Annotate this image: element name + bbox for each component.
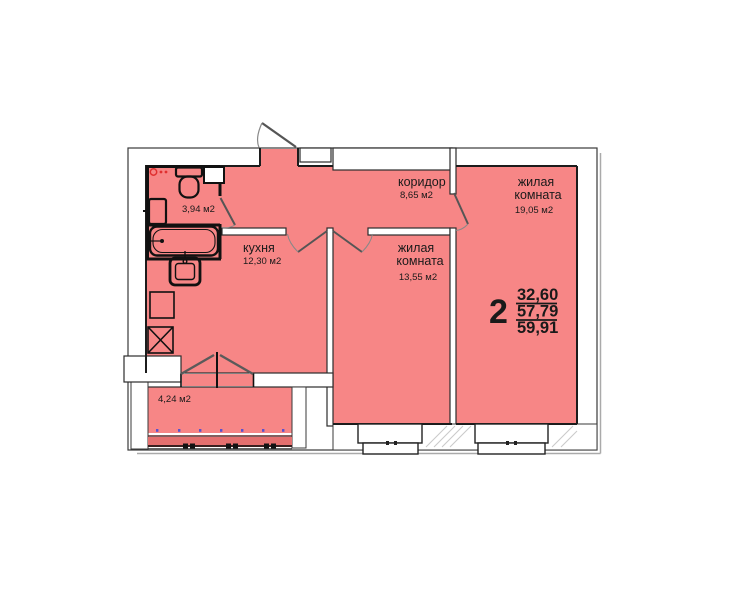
kitchen-label: кухня: [243, 241, 275, 255]
corridor-area: 8,65 м2: [400, 190, 433, 201]
corridor-label: коридор: [398, 175, 446, 189]
apartment-stamp: 2 32,60 57,79 59,91: [489, 286, 558, 337]
bathroom-area: 3,94 м2: [182, 204, 215, 215]
room-fills: [146, 149, 577, 433]
living-second-label-1: жилая: [398, 241, 434, 255]
room-fill-entry-doorway: [260, 149, 298, 166]
stamp-rooms-count: 2: [489, 293, 508, 331]
window-living-second: [358, 424, 422, 454]
balcony-area: 4,24 м2: [158, 394, 191, 405]
living-second-area: 13,55 м2: [399, 272, 437, 283]
stamp-living-area: 32,60: [517, 286, 558, 304]
vent-duct: [204, 167, 224, 183]
entrance-door: [258, 123, 296, 148]
stamp-floor-area: 57,79: [517, 303, 558, 321]
floor-plan-drawing: коридор 8,65 м2 жилая комната 19,05 м2 ж…: [0, 0, 740, 600]
living-main-area: 19,05 м2: [515, 205, 553, 216]
kitchen-area: 12,30 м2: [243, 256, 281, 267]
floor-plan-page: коридор 8,65 м2 жилая комната 19,05 м2 ж…: [0, 0, 740, 600]
living-second-label-2: комната: [396, 254, 443, 268]
stamp-total-area: 59,91: [517, 319, 558, 337]
window-living-main: [475, 424, 548, 454]
living-main-label-1: жилая: [518, 175, 554, 189]
living-main-label-2: комната: [514, 188, 561, 202]
